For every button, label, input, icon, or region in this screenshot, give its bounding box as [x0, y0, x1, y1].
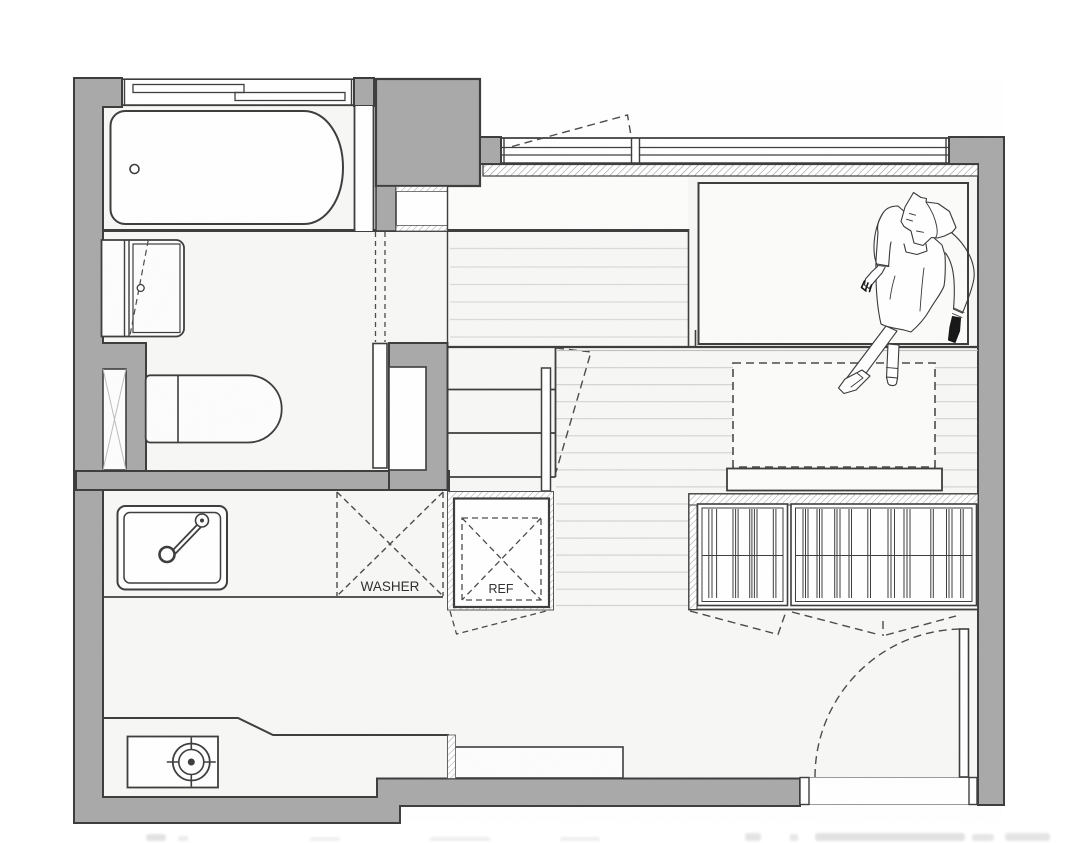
svg-text:WASHER: WASHER	[361, 579, 420, 594]
svg-text:REF: REF	[489, 582, 514, 596]
